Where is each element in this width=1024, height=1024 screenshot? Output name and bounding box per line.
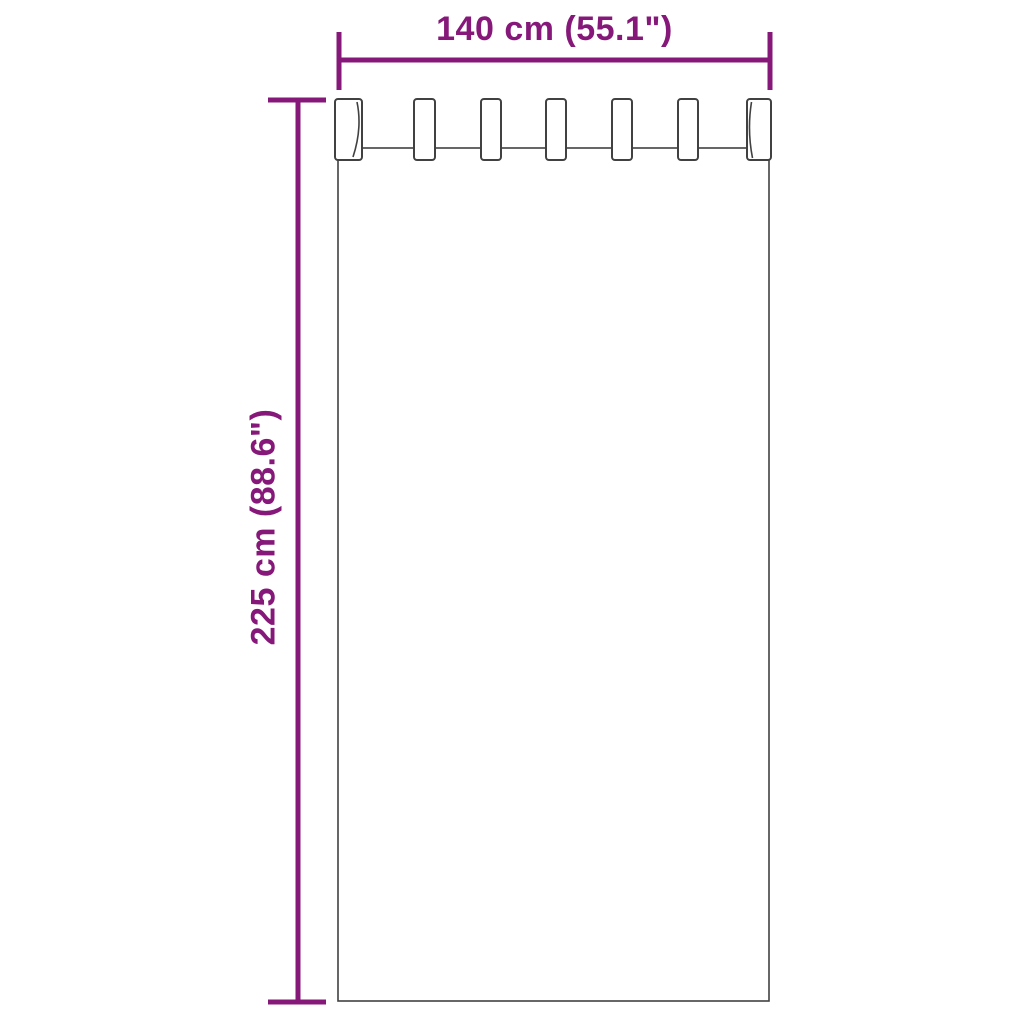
curtain-panel — [338, 148, 769, 1001]
curtain-drawing — [0, 0, 1024, 1024]
curtain-tab — [612, 99, 632, 160]
width-dimension-label: 140 cm (55.1") — [339, 10, 770, 49]
curtain-tab — [546, 99, 566, 160]
height-dimension-label: 225 cm (88.6") — [245, 409, 284, 646]
curtain-tab — [481, 99, 501, 160]
curtain-tab — [678, 99, 698, 160]
product-dimension-diagram: 140 cm (55.1") 225 cm (88.6") — [0, 0, 1024, 1024]
curtain-tab — [414, 99, 435, 160]
